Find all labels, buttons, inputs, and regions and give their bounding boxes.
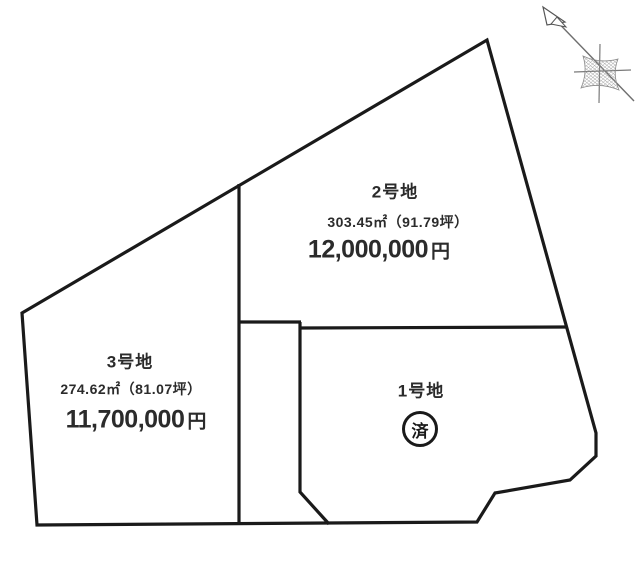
plot2-name: 2号地 [372,184,418,201]
plot1-left-line [300,322,329,524]
plot1-name: 1号地 [398,383,444,400]
site-outline [22,40,596,525]
plot3-price-amount: 11,700,000 [66,406,185,434]
plot1-sold-text: 済 [412,417,429,442]
lot-plan-diagram: 2号地 303.45㎡（91.79坪） 12,000,000円 3号地 274.… [0,0,640,563]
north-arrow-icon [543,7,634,103]
plot2-price-unit: 円 [431,242,450,263]
plot3-price-unit: 円 [187,412,206,433]
plot3-price: 11,700,000円 [66,408,207,433]
plot2-price-amount: 12,000,000 [308,236,428,264]
plot1-top-line [301,327,566,328]
plot3-name: 3号地 [107,354,153,371]
lot-plan-drawing [0,0,640,563]
plot2-price: 12,000,000円 [308,238,450,263]
plot3-area: 274.62㎡（81.07坪） [60,382,201,396]
plot1-sold-badge: 済 [402,411,438,447]
plot2-area: 303.45㎡（91.79坪） [327,215,468,229]
